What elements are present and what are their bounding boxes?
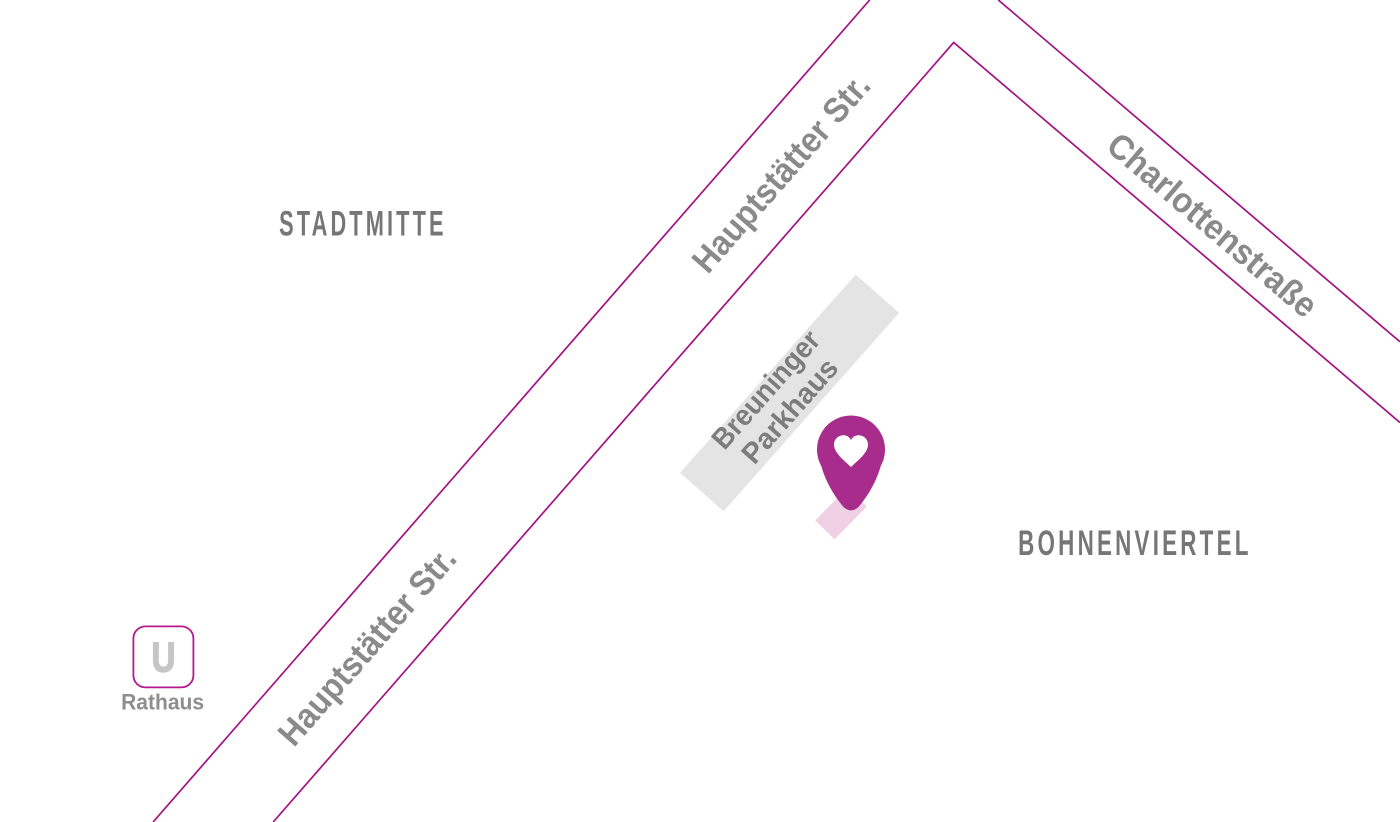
svg-text:STADTMITTE: STADTMITTE — [279, 205, 447, 244]
svg-text:U: U — [152, 633, 176, 680]
svg-text:BOHNENVIERTEL: BOHNENVIERTEL — [1018, 524, 1252, 563]
svg-text:Rathaus: Rathaus — [121, 690, 204, 715]
